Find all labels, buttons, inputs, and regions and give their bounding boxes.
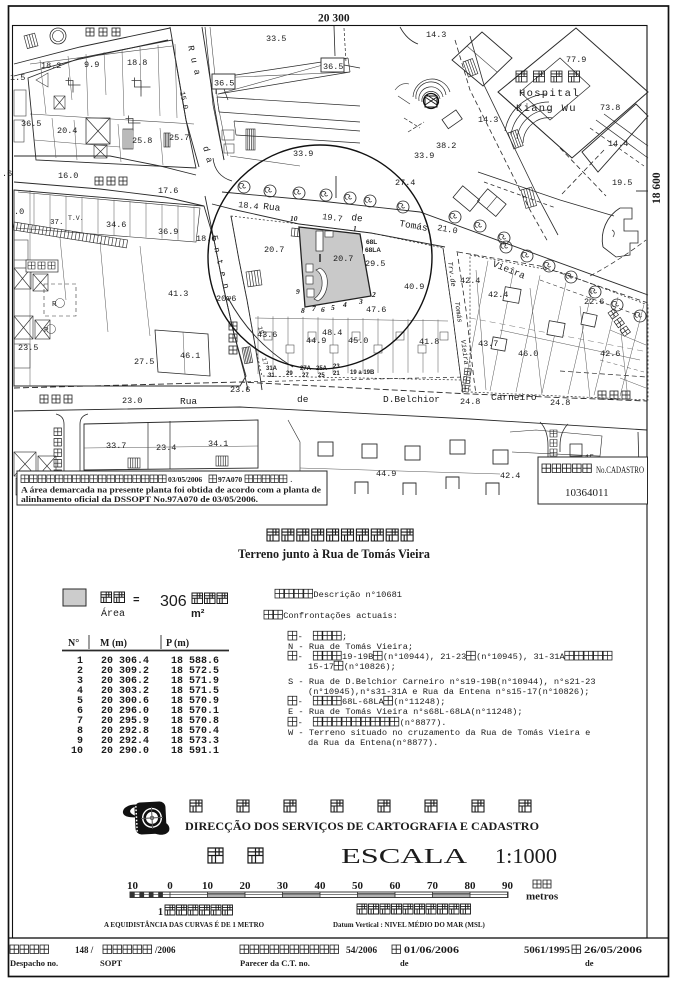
svg-text:Datum Vertical : NIVEL MÉDIO D: Datum Vertical : NIVEL MÉDIO DO MAR (MSL… <box>333 921 486 929</box>
svg-text:Área: Área <box>101 606 125 620</box>
svg-text:14.4: 14.4 <box>608 139 628 149</box>
svg-text:1:1000: 1:1000 <box>495 844 557 868</box>
svg-text:N - Rua de Tomás Vieira;: N - Rua de Tomás Vieira; <box>288 642 413 652</box>
svg-text:N°: N° <box>68 638 79 649</box>
svg-text:25.8: 25.8 <box>132 136 152 146</box>
svg-text:148 /: 148 / <box>75 945 94 955</box>
svg-text:25: 25 <box>318 373 325 379</box>
svg-text:54/2006: 54/2006 <box>346 946 377 956</box>
svg-text:10: 10 <box>290 214 298 223</box>
svg-text:70: 70 <box>427 880 439 892</box>
svg-text:Rua: Rua <box>263 201 281 214</box>
svg-text:23.5: 23.5 <box>18 343 38 353</box>
svg-text:Kiang Wu: Kiang Wu <box>516 103 577 115</box>
svg-text:5: 5 <box>331 303 335 312</box>
svg-text:9: 9 <box>296 287 300 296</box>
svg-text:21: 21 <box>333 371 340 377</box>
svg-text:-: - <box>298 632 303 642</box>
svg-text:20 290.0: 20 290.0 <box>101 746 149 757</box>
svg-text:P (m): P (m) <box>166 638 189 649</box>
svg-text:14.3: 14.3 <box>426 30 446 40</box>
svg-text:44.9: 44.9 <box>376 469 396 479</box>
svg-text:10: 10 <box>127 880 139 892</box>
svg-text:(n°10944), 21-23: (n°10944), 21-23 <box>383 652 466 662</box>
svg-text:24.8: 24.8 <box>460 397 480 407</box>
svg-text:18.4: 18.4 <box>238 200 259 212</box>
svg-text:/2006: /2006 <box>154 945 176 955</box>
svg-text:23.6: 23.6 <box>230 385 250 395</box>
svg-text:20.4: 20.4 <box>57 126 77 136</box>
svg-text:77.9: 77.9 <box>566 55 586 65</box>
svg-text:45.0: 45.0 <box>348 336 368 346</box>
svg-text:6: 6 <box>321 305 325 314</box>
svg-text:de: de <box>297 394 309 405</box>
svg-text:20.7: 20.7 <box>333 254 353 264</box>
svg-text:33.7: 33.7 <box>106 441 126 451</box>
svg-text:18.8: 18.8 <box>127 58 147 68</box>
svg-text:E - Rua de Tomás Vieira n°s68L: E - Rua de Tomás Vieira n°s68L-68LA(n°11… <box>288 707 523 717</box>
svg-text:26/05/2006: 26/05/2006 <box>584 946 642 956</box>
svg-text:9.9: 9.9 <box>84 60 99 70</box>
svg-text:17.6: 17.6 <box>158 186 178 196</box>
svg-text:0: 0 <box>167 880 173 892</box>
svg-text:18 591.1: 18 591.1 <box>171 746 219 757</box>
svg-text:33.9: 33.9 <box>414 151 434 161</box>
svg-text:.: . <box>289 477 294 485</box>
svg-text:42.4: 42.4 <box>460 276 480 286</box>
svg-text:34.6: 34.6 <box>106 220 126 230</box>
svg-text:306: 306 <box>160 593 187 610</box>
svg-text:Hospital: Hospital <box>519 88 580 100</box>
svg-text:19 a 19B: 19 a 19B <box>350 370 375 376</box>
svg-text:(n°10945),n°s31-31A e Rua da E: (n°10945),n°s31-31A e Rua da Entena n°s1… <box>308 687 590 697</box>
svg-text:ESCALA: ESCALA <box>341 844 468 868</box>
svg-text:T.V.: T.V. <box>68 215 84 222</box>
svg-text:(n°11248);: (n°11248); <box>393 697 445 707</box>
svg-text:No.CADASTRO: No.CADASTRO <box>596 465 644 475</box>
svg-text:Carneiro: Carneiro <box>491 392 537 403</box>
svg-text:18.2: 18.2 <box>41 61 61 71</box>
svg-text:metros: metros <box>526 891 559 903</box>
svg-text:S - Rua de D.Belchior Carneiro: S - Rua de D.Belchior Carneiro n°s19-19B… <box>288 677 596 687</box>
svg-text:68L-68LA: 68L-68LA <box>342 697 384 707</box>
svg-text:10: 10 <box>202 880 214 892</box>
svg-text:48.4: 48.4 <box>322 328 342 338</box>
svg-text:20: 20 <box>240 880 252 892</box>
svg-text:da Rua da Entena(n°8877).: da Rua da Entena(n°8877). <box>308 738 438 748</box>
svg-text:4: 4 <box>342 300 347 309</box>
svg-text:W - Terreno situado no cruzame: W - Terreno situado no cruzamento da Rua… <box>288 728 590 738</box>
svg-text:(n°10826);: (n°10826); <box>344 662 396 672</box>
svg-text:19.5: 19.5 <box>612 178 632 188</box>
svg-text:90: 90 <box>502 880 514 892</box>
svg-text:10364011: 10364011 <box>565 487 609 499</box>
svg-text:50: 50 <box>352 880 364 892</box>
svg-text:M (m): M (m) <box>100 638 127 649</box>
svg-text:A EQUIDISTÂNCIA DAS CURVAS É D: A EQUIDISTÂNCIA DAS CURVAS É DE 1 METRO <box>104 921 265 929</box>
svg-text:40: 40 <box>315 880 327 892</box>
svg-text:SOPT: SOPT <box>100 958 123 968</box>
svg-text:41.8: 41.8 <box>419 337 439 347</box>
svg-text:46.1: 46.1 <box>180 351 200 361</box>
svg-text:=: = <box>133 595 140 607</box>
svg-text:29: 29 <box>286 371 293 377</box>
svg-text:3: 3 <box>358 297 363 306</box>
svg-text:23.4: 23.4 <box>156 443 176 453</box>
svg-text:97A070: 97A070 <box>218 475 242 484</box>
svg-text:73.8: 73.8 <box>600 103 620 113</box>
svg-text:18 600: 18 600 <box>651 172 663 204</box>
svg-text:42.4: 42.4 <box>488 290 508 300</box>
svg-text:-: - <box>298 718 303 728</box>
svg-text:31A: 31A <box>266 366 278 372</box>
svg-text:Terreno junto à Rua de Tomás V: Terreno junto à Rua de Tomás Vieira <box>238 547 431 561</box>
svg-text:38.2: 38.2 <box>436 141 456 151</box>
svg-text:41.3: 41.3 <box>168 289 188 299</box>
svg-text:(n°8877).: (n°8877). <box>400 718 447 728</box>
svg-text:68L: 68L <box>366 239 377 246</box>
svg-text:33.9: 33.9 <box>293 149 313 159</box>
svg-text:de: de <box>351 212 364 225</box>
svg-text:A área demarcada na presente p: A área demarcada na presente planta foi … <box>21 486 322 495</box>
svg-text:.6: .6 <box>2 169 12 179</box>
svg-text:42.4: 42.4 <box>500 471 520 481</box>
svg-text:.0: .0 <box>14 207 24 217</box>
svg-text:DIRECÇÃO DOS SERVIÇOS DE CARTO: DIRECÇÃO DOS SERVIÇOS DE CARTOGRAFIA E C… <box>185 819 539 833</box>
svg-text:03/05/2006: 03/05/2006 <box>168 475 202 484</box>
svg-text:27: 27 <box>302 373 309 379</box>
svg-text:Rua: Rua <box>180 396 197 407</box>
svg-text:80: 80 <box>465 880 477 892</box>
svg-text:24.8: 24.8 <box>550 398 570 408</box>
svg-text:27.5: 27.5 <box>134 357 154 367</box>
svg-text:8: 8 <box>301 306 305 315</box>
svg-text:1: 1 <box>158 907 163 918</box>
svg-text:33.5: 33.5 <box>266 34 286 44</box>
svg-text:36.9: 36.9 <box>158 227 178 237</box>
svg-text:34.1: 34.1 <box>208 439 228 449</box>
svg-text:27.4: 27.4 <box>395 178 415 188</box>
svg-text:42.6: 42.6 <box>600 349 620 359</box>
svg-text:(n°10945), 31-31A: (n°10945), 31-31A <box>476 652 565 662</box>
svg-text:20.7: 20.7 <box>264 245 284 255</box>
svg-text:de: de <box>400 958 409 968</box>
svg-text:7: 7 <box>312 304 316 313</box>
svg-text:23.0: 23.0 <box>122 396 142 406</box>
svg-text:alinhamento oficial da DSSOPT: alinhamento oficial da DSSOPT No.97A070 … <box>21 495 258 504</box>
svg-text:68LA: 68LA <box>365 247 381 254</box>
svg-text:29.5: 29.5 <box>365 259 385 269</box>
svg-text:30: 30 <box>277 880 289 892</box>
svg-text:Despacho no.: Despacho no. <box>10 958 58 968</box>
svg-text:36.5: 36.5 <box>214 79 234 89</box>
svg-text:36.5: 36.5 <box>323 62 343 72</box>
svg-text:16.0: 16.0 <box>58 171 78 181</box>
svg-text:10: 10 <box>71 746 83 757</box>
svg-text:46.0: 46.0 <box>518 349 538 359</box>
svg-text:25.7: 25.7 <box>169 133 189 143</box>
svg-text:37.: 37. <box>50 219 64 227</box>
svg-text:47.6: 47.6 <box>366 305 386 315</box>
svg-text:19-19B: 19-19B <box>342 652 373 662</box>
svg-text:2: 2 <box>371 290 376 299</box>
svg-text:D.Belchior: D.Belchior <box>383 394 440 405</box>
svg-text:-: - <box>298 652 303 662</box>
svg-text:de: de <box>585 958 594 968</box>
svg-text:40.9: 40.9 <box>404 282 424 292</box>
svg-text:;: ; <box>342 632 347 642</box>
svg-text:01/06/2006: 01/06/2006 <box>404 946 459 956</box>
svg-text:m²: m² <box>191 608 205 620</box>
svg-text:Parecer da C.T. no.: Parecer da C.T. no. <box>240 958 310 968</box>
svg-text:20 300: 20 300 <box>318 13 350 25</box>
svg-text:14.3: 14.3 <box>478 115 498 125</box>
svg-text:43.7: 43.7 <box>478 339 498 349</box>
svg-text:60: 60 <box>390 880 402 892</box>
svg-text:-: - <box>298 697 303 707</box>
svg-text:15-17: 15-17 <box>308 662 334 672</box>
svg-text:Confrontações actuais:: Confrontações actuais: <box>283 611 398 621</box>
svg-text:1.5: 1.5 <box>10 73 25 83</box>
svg-text:1: 1 <box>353 224 357 233</box>
svg-text:Descrição n°10681: Descrição n°10681 <box>313 590 402 600</box>
svg-text:5061/1995: 5061/1995 <box>524 946 570 956</box>
svg-text:31: 31 <box>268 373 275 379</box>
